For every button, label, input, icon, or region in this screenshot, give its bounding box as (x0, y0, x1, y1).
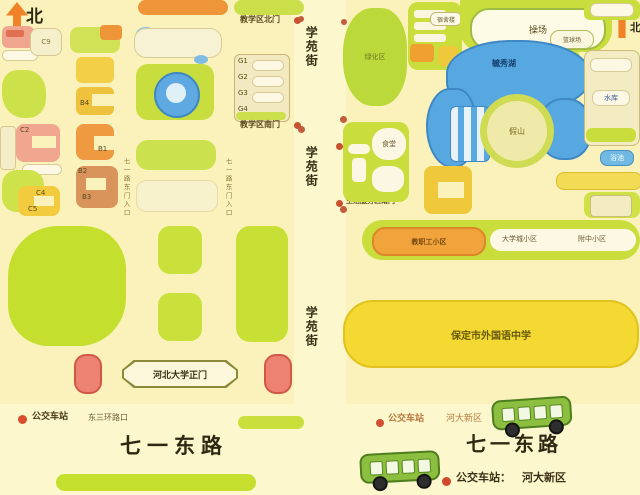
top-green-strip (234, 0, 304, 15)
building-c5: C5 (28, 206, 37, 214)
road-verge-small (238, 416, 304, 429)
bus-stop-dot-icon (376, 419, 384, 427)
street-label-xueyuan-1: 学苑街 (304, 26, 317, 68)
pond-dot-icon (194, 55, 208, 64)
notch (32, 136, 56, 148)
street-stop-dot-icon (298, 126, 305, 133)
canteen-pill (348, 144, 370, 154)
reservoir-pill: 水库 (592, 90, 630, 106)
lawn-tall (236, 226, 288, 342)
lake-label: 毓秀湖 (492, 60, 516, 69)
gate-dot-icon (336, 200, 343, 207)
legend-top-label: 公交车站 (388, 415, 424, 425)
bus-stop-dot-icon (442, 477, 451, 486)
building-g1: G1 (238, 58, 248, 66)
building-c9: C9 (30, 28, 62, 56)
building-west-edge (0, 126, 16, 170)
gate-label-teaching-south: 教学区南门 (240, 121, 280, 130)
bus-window (385, 460, 399, 475)
community-a: 大学城小区 (502, 236, 537, 244)
notch (92, 94, 114, 106)
bus-window (533, 405, 547, 420)
gate-pillar-left (74, 354, 102, 394)
island: 假山 (487, 101, 547, 161)
lawn-square-2 (158, 293, 202, 341)
legend-left-label: 公交车站 (32, 413, 68, 423)
legend-bottom-label: 公交车站： (456, 472, 511, 484)
community-orange: 教职工小区 (372, 227, 486, 256)
building-g-pill-1 (252, 60, 284, 71)
building-pink-tag (6, 30, 24, 37)
legend-bottom-stop: 河大新区 (522, 472, 566, 484)
canteen-annex (372, 166, 404, 192)
entry-note-west: 七一路东门入口 (122, 158, 129, 218)
lawn-large (8, 226, 126, 346)
building-g3: G3 (238, 90, 248, 98)
notch (438, 182, 464, 198)
building-b3: B3 (82, 194, 91, 202)
bus-window (417, 458, 431, 473)
g-block-green-base (236, 112, 286, 120)
building-c4: C4 (36, 190, 45, 198)
dorm-label-pill: 宿舍楼 (430, 12, 462, 26)
building-lower-right-inner (590, 195, 632, 217)
foreign-language-school: 保定市外国语中学 (343, 300, 639, 368)
legend-left-stop: 东三环路口 (88, 414, 128, 423)
street-label-xueyuan-3: 学苑街 (304, 306, 317, 348)
lawn-square-1 (158, 226, 202, 274)
road-label-right: 七一东路 (466, 428, 562, 457)
notch (86, 178, 106, 190)
gate-dot-icon (336, 143, 343, 150)
bus-icon (359, 448, 443, 492)
building-strip-yellow (556, 172, 640, 190)
building-b4: B4 (80, 100, 89, 108)
community-b: 附中小区 (578, 236, 606, 244)
right-building-pill (590, 58, 632, 72)
right-building-lawn (586, 128, 636, 142)
north-label-right: 北 (630, 22, 640, 34)
dorm-strip (414, 34, 446, 42)
building-main-hall (134, 28, 222, 58)
street-stop-dot-icon (341, 19, 347, 25)
bus-wheel (372, 476, 388, 492)
bus-stop-dot-icon (18, 415, 27, 424)
green-area: 绿化区 (343, 8, 407, 106)
road-label-left: 七一东路 (120, 430, 228, 460)
building-b4-upper (76, 57, 114, 83)
bus-wheel (416, 473, 432, 489)
main-gate-banner: 河北大学正门 (124, 362, 236, 386)
canteen-strip (352, 158, 366, 182)
pond-island-icon (166, 83, 186, 103)
building-b1: B1 (98, 146, 107, 154)
gate-label-teaching-north: 教学区北门 (240, 16, 280, 25)
building-g-pill-3 (252, 92, 284, 103)
street-label-xueyuan-2: 学苑街 (304, 146, 317, 188)
bus-window (501, 407, 515, 422)
canteen: 食堂 (372, 128, 406, 160)
building-g-pill-2 (252, 76, 284, 87)
bus-window (369, 461, 383, 476)
top-orange-strip (138, 0, 228, 15)
bus-window (549, 404, 563, 419)
building-c2: C2 (20, 127, 29, 135)
building-b2: B2 (78, 168, 87, 176)
north-label-left: 北 (26, 8, 43, 27)
street-stop-dot-icon (298, 16, 304, 22)
dorm-orange-building (410, 44, 434, 62)
bus-window (401, 459, 415, 474)
plaza-block (136, 180, 218, 212)
gate-pillar-right (264, 354, 292, 394)
street-stop-dot-icon (340, 116, 347, 123)
library-block (136, 140, 216, 170)
building-orange-corner (100, 25, 122, 40)
street-stop-dot-icon (340, 206, 347, 213)
entry-note-east: 七一路东门入口 (224, 158, 231, 218)
bus-window (517, 406, 531, 421)
road-verge-strip (56, 474, 256, 491)
bath-pill: 浴池 (600, 150, 634, 166)
campus-map: 北 教学区北门 C9 G1 G2 G3 G4 教学区南门 B4 B1 B2 B3… (0, 0, 640, 495)
legend-top-stop: 河大新区 (446, 415, 482, 425)
building-g2: G2 (238, 74, 248, 82)
right-edge-pill (590, 3, 634, 17)
green-area-left (2, 70, 46, 118)
